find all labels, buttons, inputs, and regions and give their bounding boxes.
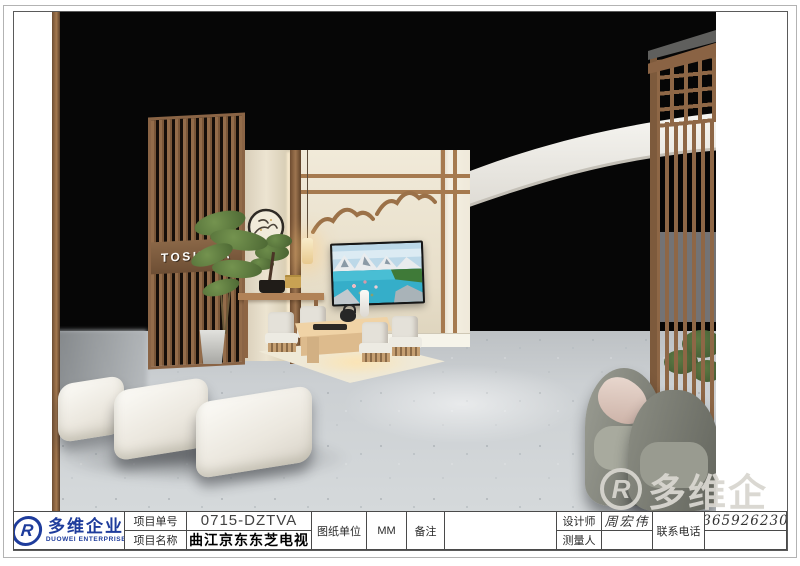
mountain-molding-left	[311, 206, 375, 234]
project-name-value: 曲江京东东芝电视	[186, 531, 311, 550]
surveyor-label: 测量人	[556, 531, 601, 550]
unit-value: MM	[366, 512, 406, 549]
tv-wall	[301, 150, 470, 345]
mountain-molding-right	[375, 190, 437, 216]
wall-trim-vertical	[441, 150, 445, 345]
pendant-lamp	[302, 238, 313, 264]
title-block: R 多维企业 DUOWEI ENTERPRISE 项目单号 0715-DZTVA…	[13, 511, 787, 550]
lounge-chair	[628, 390, 716, 511]
tea-tray	[313, 324, 347, 330]
company-logo: R 多维企业 DUOWEI ENTERPRISE	[14, 512, 124, 549]
company-logo-icon: R	[14, 516, 43, 546]
remark-value	[444, 512, 556, 549]
designer-value: 周宏伟	[601, 512, 652, 531]
surveyor-value	[601, 531, 652, 550]
phone-value-empty	[704, 531, 786, 550]
phone-value: 13659262305	[704, 512, 786, 531]
console-leg	[244, 300, 248, 358]
bonsai-tree	[266, 234, 292, 248]
teapot	[340, 309, 356, 322]
unit-label: 图纸单位	[311, 512, 366, 549]
console-table	[238, 293, 324, 300]
project-name-label: 项目名称	[124, 531, 186, 550]
booth-render-image: TOSHIBA	[52, 12, 716, 511]
designer-label: 设计师	[556, 512, 601, 531]
tea-table-leg	[307, 337, 319, 363]
company-name-en: DUOWEI ENTERPRISE	[46, 537, 124, 544]
project-no-label: 项目单号	[124, 512, 186, 531]
company-name: 多维企业	[48, 518, 124, 535]
drawing-sheet: { "company": { "logo_name": "多维企业", "log…	[0, 0, 800, 566]
flower-vase	[360, 290, 369, 317]
wall-trim-vertical	[453, 150, 457, 345]
bonsai-pot	[259, 280, 285, 293]
phone-label: 联系电话	[652, 512, 704, 549]
bench-cushion	[114, 377, 208, 462]
remark-label: 备注	[406, 512, 444, 549]
project-no-value: 0715-DZTVA	[186, 512, 311, 531]
pendant-lamp-cord	[307, 150, 308, 240]
table-decor-books	[285, 275, 301, 288]
